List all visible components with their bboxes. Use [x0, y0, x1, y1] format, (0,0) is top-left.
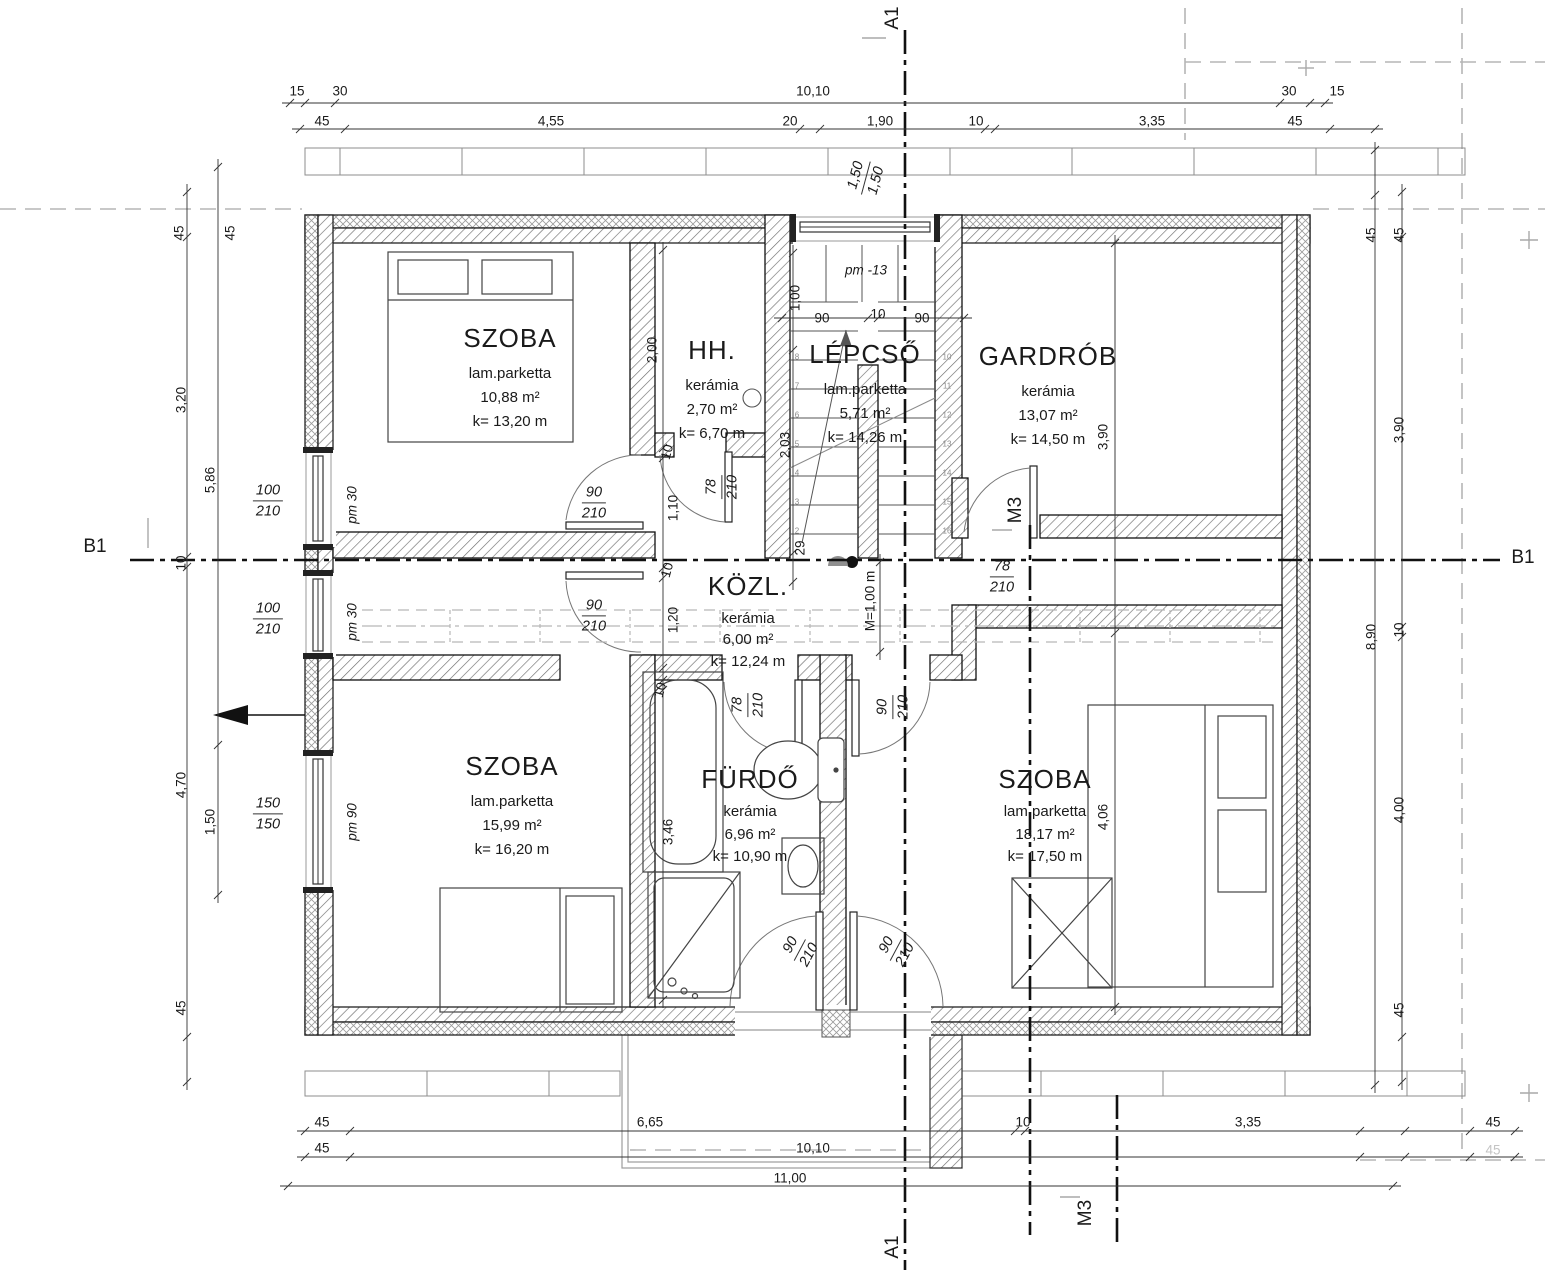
entry-arrow: [213, 705, 305, 725]
dimension-line: [282, 99, 1333, 107]
bed-bottom-left: [440, 888, 622, 1012]
dimension-line: [659, 242, 667, 1008]
window-left-3: [302, 750, 336, 893]
dimension-line: [297, 1127, 1523, 1135]
dimension-line: [183, 184, 191, 1090]
dimension-line: [280, 1182, 1401, 1190]
dimension-line: [297, 1153, 1523, 1161]
dimension-line: [1371, 142, 1379, 1093]
window-stair-top: [790, 213, 940, 247]
dimension-line: [1398, 184, 1406, 1090]
stair-start-dot: [846, 556, 858, 568]
toilet: [754, 738, 844, 802]
bed-top-left: [388, 252, 573, 442]
washbasin: [782, 838, 824, 894]
wardrobe-x: [1012, 878, 1112, 988]
roof-overhang-lines: [0, 8, 1545, 1160]
terrace-outline: [622, 1035, 962, 1168]
dimension-line: [292, 125, 1383, 133]
hh-appliance-circle: [743, 389, 761, 407]
eave-band-top: [305, 148, 1465, 175]
shower: [648, 872, 740, 999]
window-left-2: [302, 570, 336, 659]
window-left-1: [302, 447, 336, 550]
eave-band-bottom: [305, 1071, 1465, 1096]
floor-plan-page: { "drawing": { "rooms": [ {"name":"SZOBA…: [0, 0, 1565, 1280]
dimension-line: [876, 554, 884, 660]
floor-plan-canvas: [0, 0, 1565, 1280]
bed-bottom-right: [1088, 705, 1273, 987]
dimension-line: [214, 159, 222, 903]
terrace-pier: [930, 1035, 962, 1168]
